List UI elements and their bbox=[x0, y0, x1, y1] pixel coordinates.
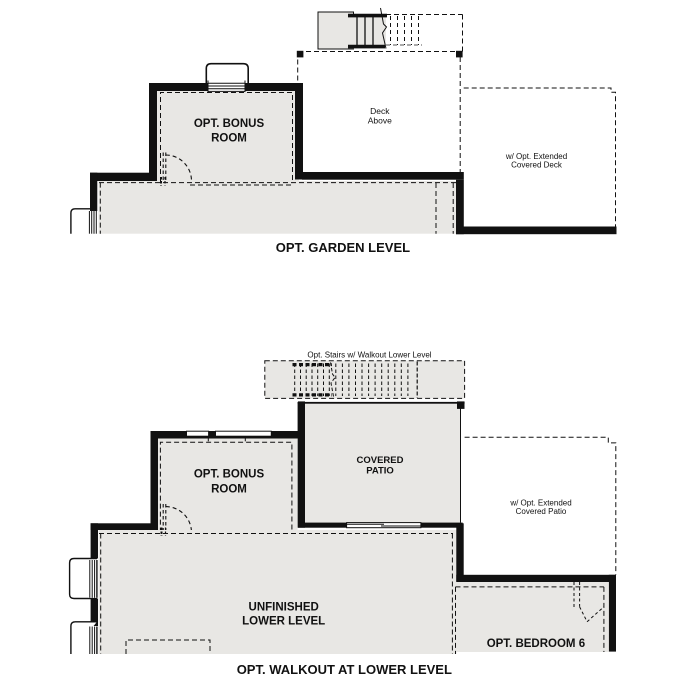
svg-text:ROOM: ROOM bbox=[211, 133, 247, 145]
svg-text:OPT. BONUS: OPT. BONUS bbox=[194, 118, 265, 130]
svg-text:Above: Above bbox=[368, 116, 392, 126]
svg-text:OPT. GARDEN LEVEL: OPT. GARDEN LEVEL bbox=[276, 240, 410, 255]
svg-text:ROOM: ROOM bbox=[211, 483, 247, 495]
svg-text:OPT. WALKOUT AT LOWER LEVEL: OPT. WALKOUT AT LOWER LEVEL bbox=[237, 662, 452, 677]
svg-text:Covered Patio: Covered Patio bbox=[516, 507, 567, 516]
svg-text:Opt. Stairs w/ Walkout Lower L: Opt. Stairs w/ Walkout Lower Level bbox=[307, 350, 431, 359]
svg-text:OPT. BEDROOM 6: OPT. BEDROOM 6 bbox=[487, 638, 585, 650]
svg-text:COVERED: COVERED bbox=[357, 455, 404, 466]
svg-text:w/ Opt. Extended: w/ Opt. Extended bbox=[509, 498, 571, 507]
svg-text:UNFINISHED: UNFINISHED bbox=[249, 601, 319, 613]
svg-text:LOWER LEVEL: LOWER LEVEL bbox=[242, 615, 325, 627]
svg-text:OPT. BONUS: OPT. BONUS bbox=[194, 468, 265, 480]
svg-text:PATIO: PATIO bbox=[366, 466, 394, 477]
svg-text:w/ Opt. Extended: w/ Opt. Extended bbox=[505, 152, 567, 161]
svg-text:Covered Deck: Covered Deck bbox=[511, 161, 563, 170]
